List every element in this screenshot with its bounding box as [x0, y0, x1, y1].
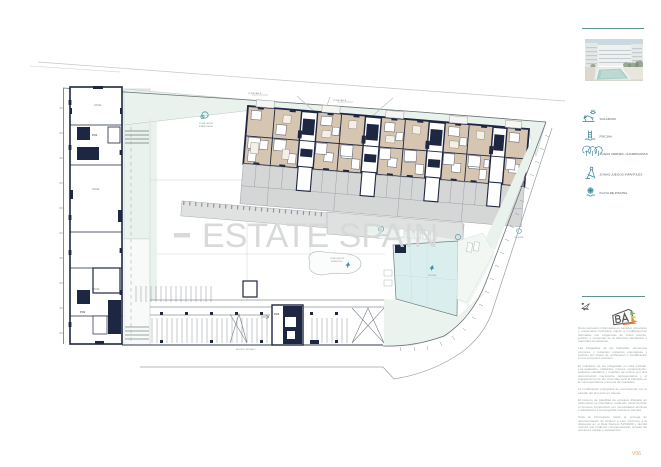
- svg-text:ESTATE SPAIN: ESTATE SPAIN: [202, 217, 438, 255]
- svg-text:ZONAS JUEGOS INFANTILES: ZONAS JUEGOS INFANTILES: [600, 172, 643, 176]
- svg-text:LOCAL: LOCAL: [92, 288, 101, 291]
- svg-text:P01: P01: [92, 133, 98, 137]
- svg-text:AJARDINADA: AJARDINADA: [199, 125, 213, 128]
- svg-text:PISCINA: PISCINA: [428, 274, 437, 277]
- svg-text:LOCAL: LOCAL: [92, 188, 101, 191]
- svg-text:ZONA JUEGOS: ZONA JUEGOS: [330, 257, 345, 260]
- svg-text:SOLARIUM: SOLARIUM: [600, 117, 617, 121]
- svg-text:ZONA VERDE: ZONA VERDE: [199, 122, 214, 125]
- svg-text:INFANTILES: INFANTILES: [331, 260, 343, 263]
- svg-text:COTA CALLE: COTA CALLE: [333, 99, 347, 102]
- svg-text:ZONAS VERDES / AJARDINADAS: ZONAS VERDES / AJARDINADAS: [600, 152, 648, 156]
- svg-text:PISCINA: PISCINA: [600, 134, 613, 138]
- svg-text:ACCESO RODADO: ACCESO RODADO: [236, 348, 256, 351]
- svg-text:P04: P04: [274, 312, 280, 316]
- svg-text:COTA CALLE: COTA CALLE: [248, 92, 262, 95]
- svg-text:PLAYA DE PISCINA: PLAYA DE PISCINA: [600, 191, 629, 195]
- svg-text:TERRAZA: TERRAZA: [514, 236, 524, 239]
- svg-text:P02: P02: [80, 310, 86, 314]
- svg-text:LOCAL: LOCAL: [94, 104, 103, 107]
